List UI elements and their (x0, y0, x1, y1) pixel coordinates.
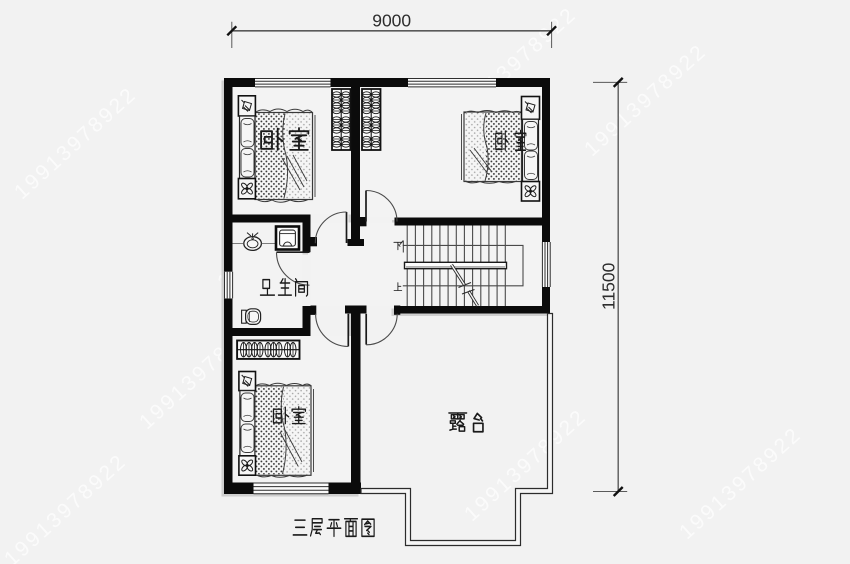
svg-text:11500: 11500 (599, 262, 619, 310)
svg-text:9000: 9000 (372, 11, 411, 31)
